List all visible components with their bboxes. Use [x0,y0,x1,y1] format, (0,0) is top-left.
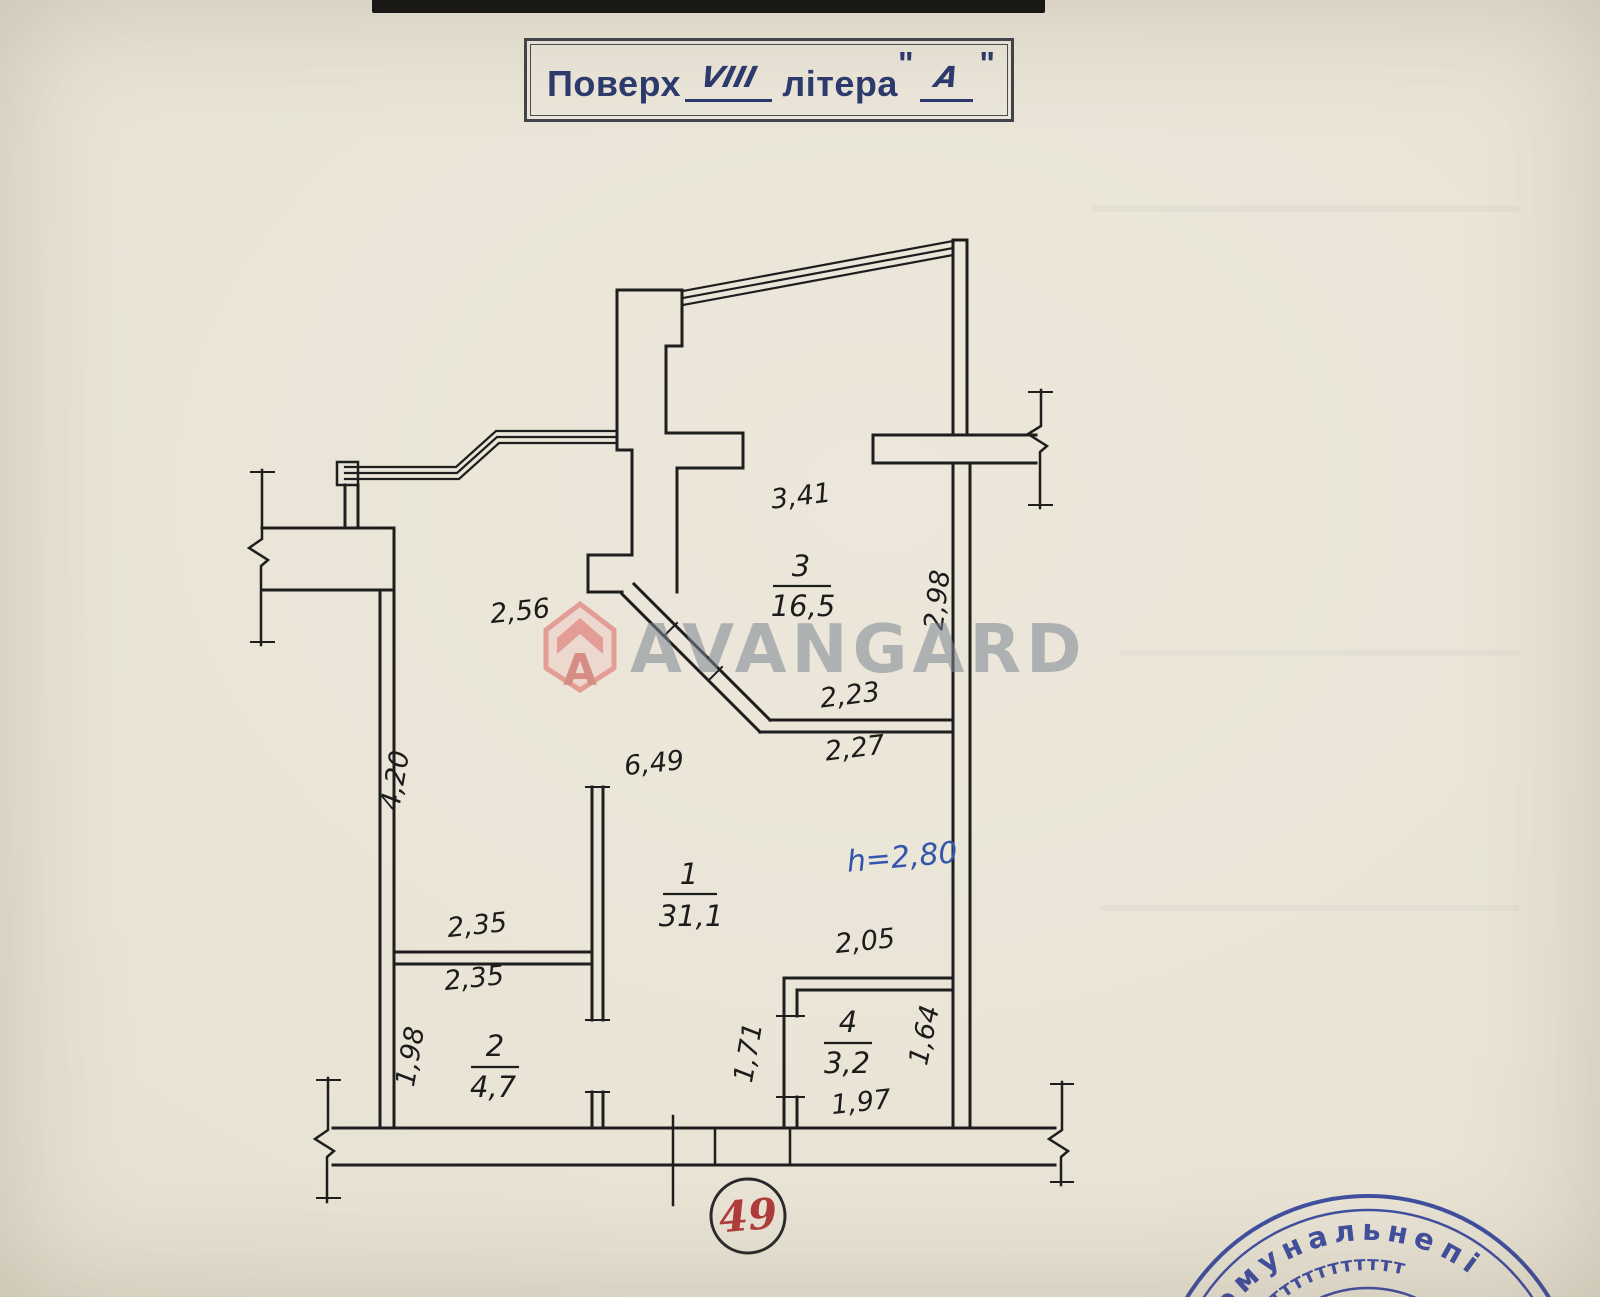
window-left [345,431,617,479]
stamp-arc-text-right: пі [1433,1229,1492,1286]
wall-right-outer [953,463,970,1128]
dim-niche-width: 2,56 [489,593,552,630]
wall-central-pier [588,290,743,592]
plan-walls [249,240,1073,1205]
room1-label: 1 31,1 [659,857,724,933]
wall-loggia-right [953,240,967,435]
logo-letter: A [563,645,597,696]
break-symbol-bottom-right [1049,1082,1068,1185]
room1-area: 31,1 [659,899,724,933]
dim-room4-width-top: 2,05 [834,923,897,960]
wall-bottom-outer [333,1128,1055,1165]
room2-label: 2 4,7 [470,1029,519,1104]
brand-watermark-text: AVANGARD [630,610,1087,688]
apartment-number-circle: 49 [711,1179,785,1253]
dim-room4-right: 1,64 [903,1003,946,1068]
break-symbol-left [249,470,268,645]
dim-room3-door-bottom: 2,27 [823,730,886,768]
room1-number: 1 [680,857,698,891]
document-photo: Поверх VIII літера " А " [0,0,1600,1297]
apartment-number: 49 [717,1189,780,1243]
dim-room4-width-bottom: 1,97 [830,1084,893,1121]
room2-number: 2 [486,1029,504,1063]
dim-closet-width: 2,35 [446,907,509,944]
plan-labels: 3,41 2,98 2,56 2,23 2,27 6,49 4,20 2,35 … [375,478,959,1122]
dim-room3-width: 3,41 [769,478,832,516]
wall-left-band [262,528,394,590]
room2-area: 4,7 [470,1070,517,1104]
door-ticks-room2 [586,787,609,1092]
dim-room2-depth: 1,98 [390,1024,431,1089]
wall-upper-left [345,485,358,528]
ceiling-height-note: h=2,80 [845,835,959,880]
wall-right-stub [873,435,1036,463]
brand-watermark: A AVANGARD [546,604,1087,696]
floor-plan-drawing: 3,41 2,98 2,56 2,23 2,27 6,49 4,20 2,35 … [0,0,1600,1297]
door-ticks-room4 [777,1016,804,1097]
room4-area: 3,2 [824,1046,870,1080]
wall-hall-partition [592,787,603,1128]
svg-text:пі: пі [1433,1229,1492,1286]
break-symbol-top-right [1028,390,1047,508]
room4-number: 4 [839,1005,857,1039]
dim-hall-width: 6,49 [623,745,686,782]
wall-left-outer [380,590,394,1128]
room4-label: 4 3,2 [824,1005,872,1080]
dim-room4-left: 1,71 [728,1020,769,1085]
window-top-right [683,241,953,305]
room3-number: 3 [792,549,810,583]
official-stamp: комунальне пі тттттттттттттт [1142,1182,1595,1297]
avangard-logo-icon: A [546,604,614,696]
dim-room2-width: 2,35 [443,960,506,997]
break-symbol-bottom-left [315,1078,334,1202]
